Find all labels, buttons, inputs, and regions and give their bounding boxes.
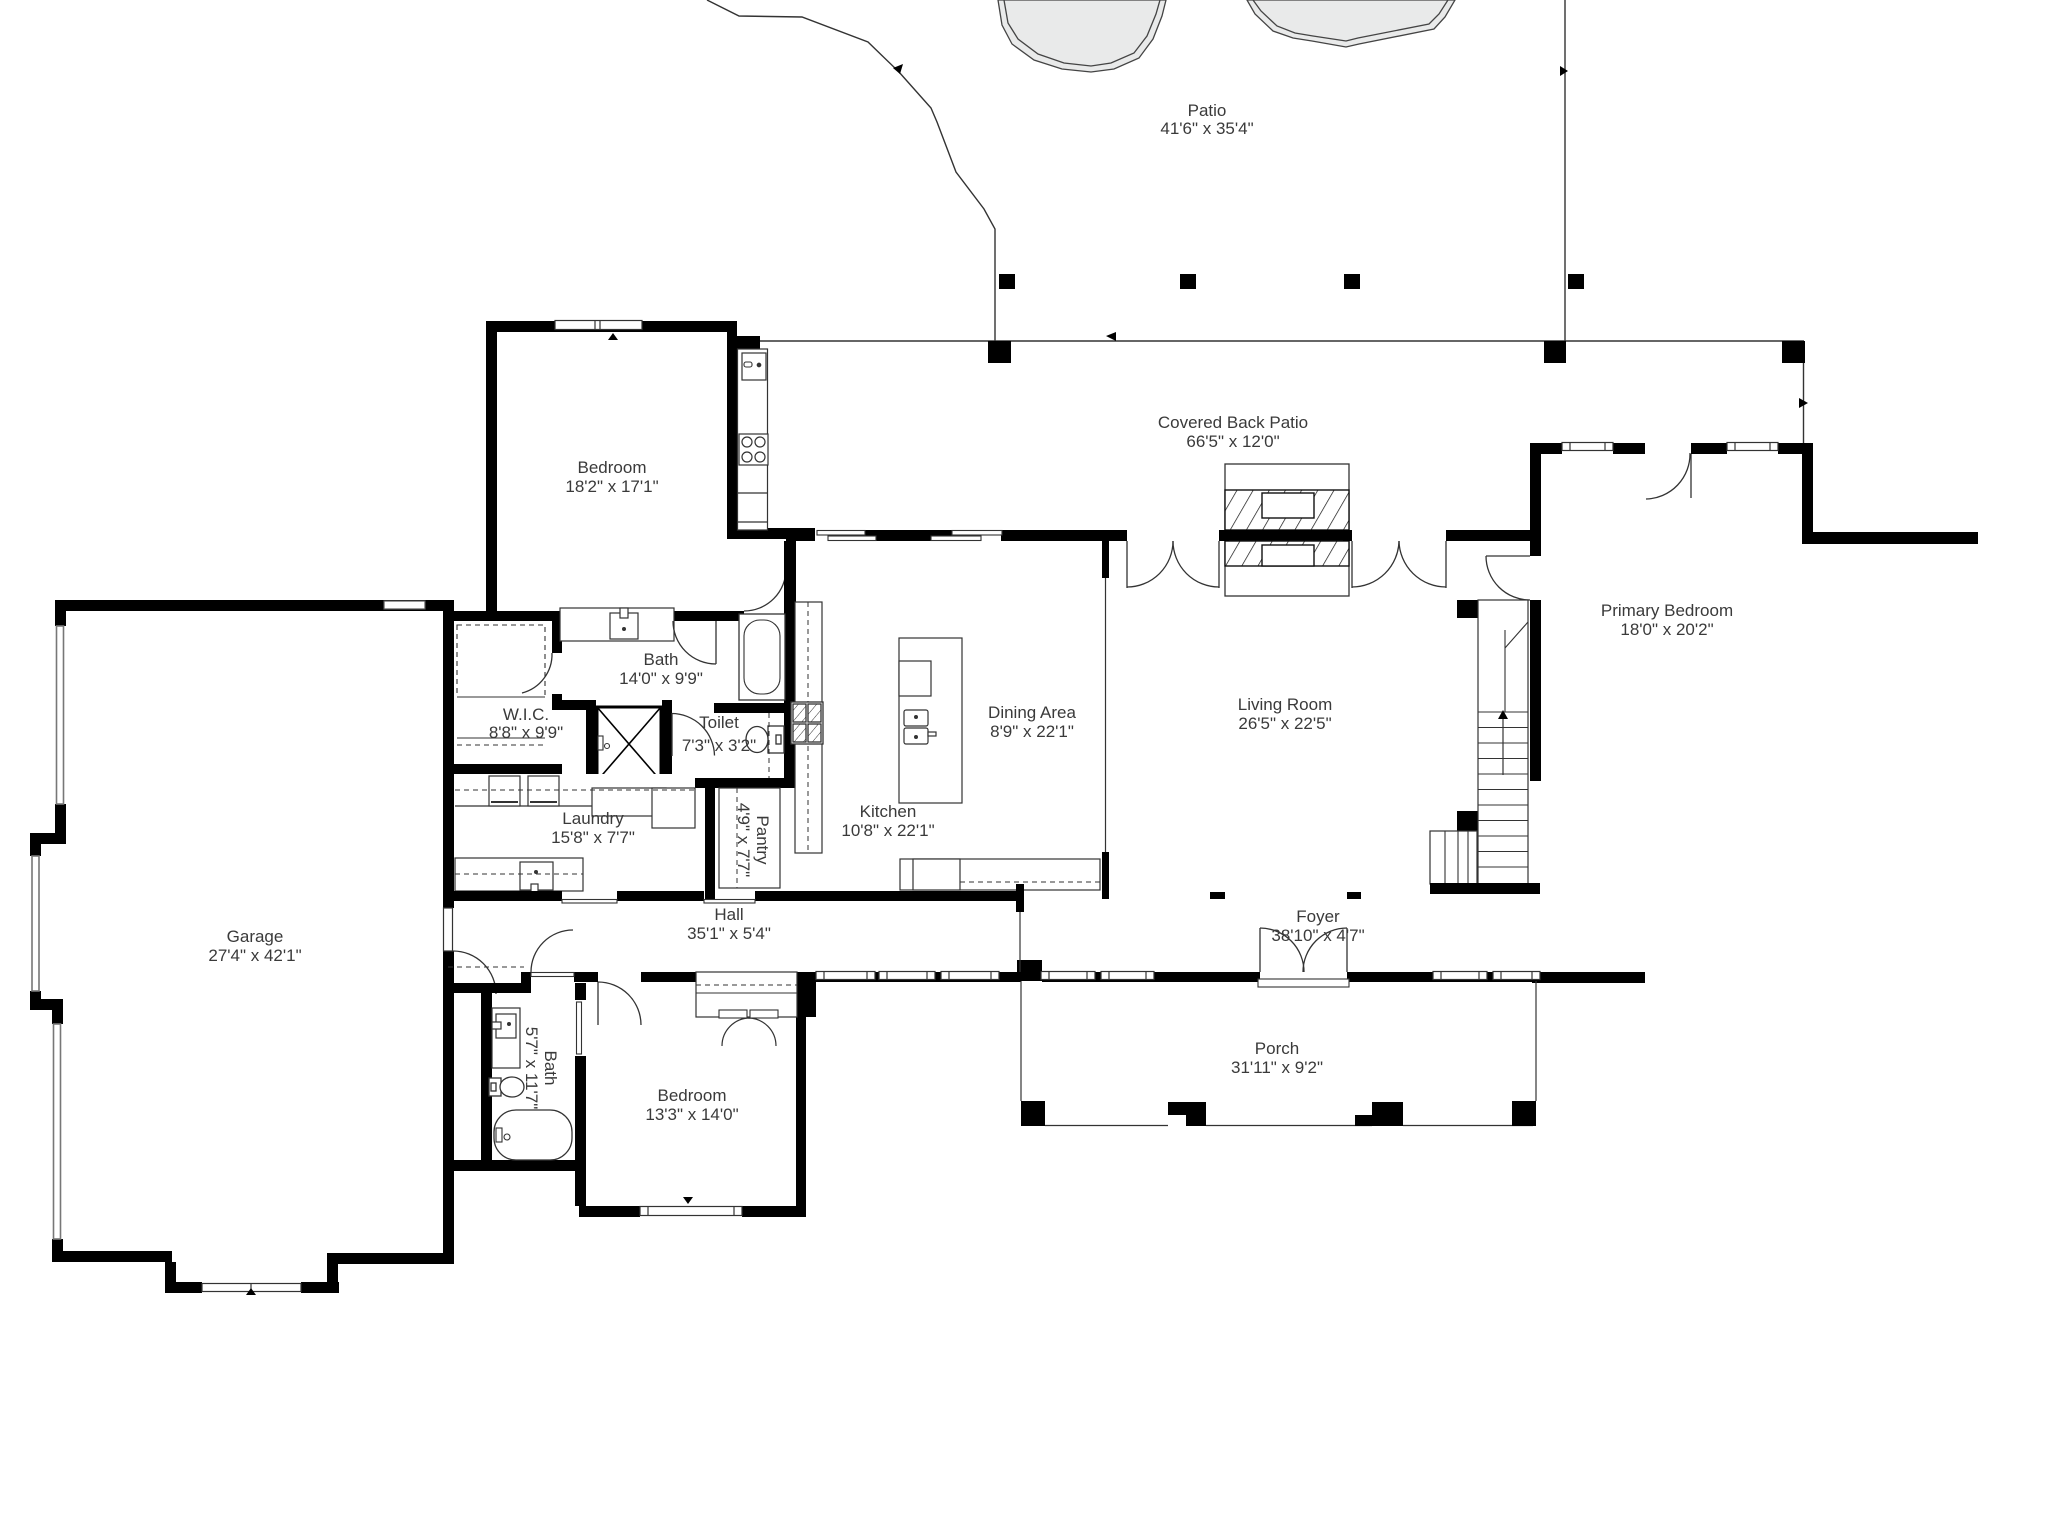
svg-text:18'2" x 17'1": 18'2" x 17'1": [565, 477, 658, 496]
svg-text:10'8" x 22'1": 10'8" x 22'1": [841, 821, 934, 840]
svg-text:Garage: Garage: [227, 927, 284, 946]
svg-text:Bath: Bath: [541, 1051, 560, 1086]
svg-text:31'11" x 9'2": 31'11" x 9'2": [1231, 1058, 1323, 1077]
svg-text:Kitchen: Kitchen: [860, 802, 917, 821]
svg-text:Primary Bedroom: Primary Bedroom: [1601, 601, 1733, 620]
svg-text:13'3" x 14'0": 13'3" x 14'0": [645, 1105, 738, 1124]
svg-text:Hall: Hall: [714, 905, 743, 924]
svg-text:8'8" x 9'9": 8'8" x 9'9": [489, 723, 563, 742]
svg-text:7'3" x 3'2": 7'3" x 3'2": [682, 736, 756, 755]
svg-text:8'9" x 22'1": 8'9" x 22'1": [990, 722, 1074, 741]
svg-text:Bath: Bath: [644, 650, 679, 669]
svg-text:Bedroom: Bedroom: [658, 1086, 727, 1105]
svg-text:66'5" x 12'0": 66'5" x 12'0": [1186, 432, 1279, 451]
svg-text:Foyer: Foyer: [1296, 907, 1340, 926]
svg-text:38'10" x 4'7": 38'10" x 4'7": [1271, 926, 1364, 945]
svg-text:Toilet: Toilet: [699, 713, 739, 732]
svg-text:15'8" x 7'7": 15'8" x 7'7": [551, 828, 635, 847]
svg-text:Patio: Patio: [1188, 101, 1227, 120]
svg-text:Porch: Porch: [1255, 1039, 1299, 1058]
svg-text:26'5" x 22'5": 26'5" x 22'5": [1238, 714, 1331, 733]
svg-text:14'0" x 9'9": 14'0" x 9'9": [619, 669, 703, 688]
svg-text:27'4" x 42'1": 27'4" x 42'1": [208, 946, 301, 965]
svg-text:Living Room: Living Room: [1238, 695, 1333, 714]
svg-text:4'9" x 7'7": 4'9" x 7'7": [734, 803, 753, 877]
svg-text:5'7" x 11'7": 5'7" x 11'7": [522, 1027, 541, 1110]
svg-text:Laundry: Laundry: [562, 809, 624, 828]
svg-text:18'0" x 20'2": 18'0" x 20'2": [1620, 620, 1713, 639]
svg-text:Bedroom: Bedroom: [578, 458, 647, 477]
svg-text:W.I.C.: W.I.C.: [503, 705, 549, 724]
svg-text:Pantry: Pantry: [753, 815, 772, 865]
svg-text:Covered Back Patio: Covered Back Patio: [1158, 413, 1308, 432]
svg-text:35'1" x 5'4": 35'1" x 5'4": [687, 924, 771, 943]
svg-text:41'6" x 35'4": 41'6" x 35'4": [1160, 119, 1253, 138]
svg-text:Dining Area: Dining Area: [988, 703, 1076, 722]
